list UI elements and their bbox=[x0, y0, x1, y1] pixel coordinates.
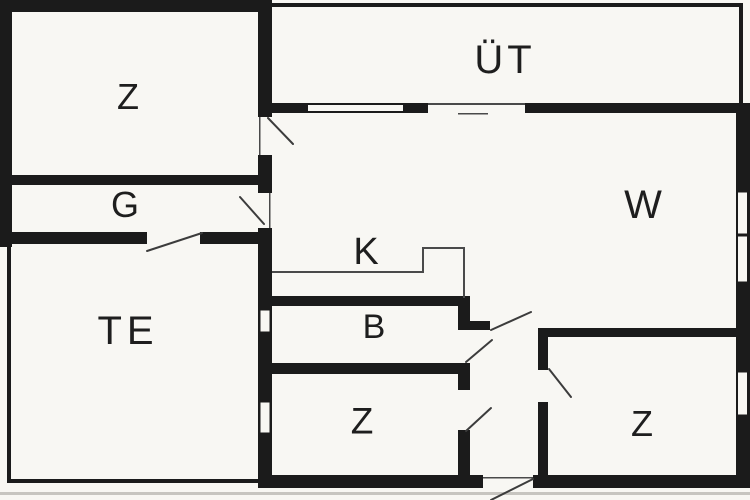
window-w-right-1 bbox=[738, 192, 748, 234]
kitchen-counter-edge-4 bbox=[463, 248, 465, 298]
room-label-bedroom-top-left: Z bbox=[117, 79, 139, 115]
kitchen-counter-edge-2 bbox=[422, 248, 424, 273]
door-swing-g-terrace bbox=[147, 233, 202, 251]
wall-z-right-left-upper bbox=[538, 328, 548, 370]
threshold-z-door bbox=[259, 117, 261, 155]
wall-corridor-left-middle bbox=[458, 363, 470, 390]
window-ut-bottom-edge bbox=[308, 111, 403, 113]
wall-z-right-left-lower bbox=[538, 402, 548, 478]
scan-shadow-line bbox=[0, 492, 750, 495]
room-label-bedroom-middle: Z bbox=[351, 403, 374, 440]
door-swing-w-corridor bbox=[491, 312, 531, 330]
door-swing-z-middle bbox=[466, 408, 491, 431]
room-label-hall-corridor: G bbox=[111, 187, 139, 223]
wall-corridor-left-lower bbox=[458, 430, 470, 477]
room-label-kitchen: K bbox=[353, 233, 378, 271]
room-label-living-room: W bbox=[624, 185, 662, 225]
room-label-covered-terrace: ÜT bbox=[474, 40, 535, 80]
wall-ut-top-thin bbox=[268, 3, 743, 7]
wall-ut-bottom-1 bbox=[267, 103, 308, 113]
wall-te-bottom-thin bbox=[7, 479, 258, 483]
kitchen-counter-edge-1 bbox=[272, 271, 423, 273]
wall-main-vertical-middle bbox=[258, 155, 272, 193]
wall-top-outer bbox=[0, 0, 270, 12]
room-label-bathroom: B bbox=[363, 310, 386, 344]
door-swing-bathroom bbox=[466, 340, 492, 362]
room-label-terrace: TE bbox=[97, 311, 158, 351]
wall-main-vertical-upper bbox=[258, 0, 272, 117]
door-swing-entrance bbox=[491, 479, 533, 500]
wall-ut-bottom-2 bbox=[403, 103, 428, 113]
wall-b-z-divider bbox=[262, 363, 470, 374]
window-z-middle-terrace bbox=[260, 402, 270, 433]
window-b-terrace bbox=[260, 310, 270, 332]
wall-right-outer bbox=[736, 107, 750, 488]
door-swing-z-right bbox=[549, 369, 571, 397]
door-swing-g-hall bbox=[240, 197, 264, 224]
wall-bottom-right bbox=[533, 475, 750, 488]
threshold-g-door bbox=[269, 193, 271, 228]
opening-ut-threshold bbox=[428, 103, 525, 105]
opening-ut-threshold-2 bbox=[458, 113, 488, 115]
wall-z-right-top bbox=[538, 328, 748, 337]
wall-g-te-divider-right bbox=[200, 232, 258, 244]
window-z-right bbox=[738, 372, 748, 415]
wall-w-corridor-stub bbox=[458, 321, 490, 330]
window-ut-top-edge bbox=[308, 103, 403, 105]
wall-ut-right-thin bbox=[739, 3, 743, 107]
wall-te-left-thin bbox=[7, 243, 11, 483]
wall-w-top bbox=[525, 103, 750, 113]
door-swing-z-top-left bbox=[268, 118, 293, 144]
window-w-right-2 bbox=[738, 236, 748, 282]
floor-plan: Z ÜT G W TE K B Z Z bbox=[0, 0, 750, 500]
room-label-bedroom-right: Z bbox=[631, 406, 653, 442]
wall-k-b-divider bbox=[262, 296, 470, 306]
kitchen-counter-edge-3 bbox=[422, 247, 465, 249]
wall-main-vertical-lower bbox=[258, 228, 272, 483]
wall-left-outer bbox=[0, 0, 12, 247]
wall-bottom-left bbox=[258, 475, 483, 488]
wall-g-te-divider-left bbox=[0, 232, 147, 244]
threshold-entrance-door bbox=[483, 477, 533, 479]
